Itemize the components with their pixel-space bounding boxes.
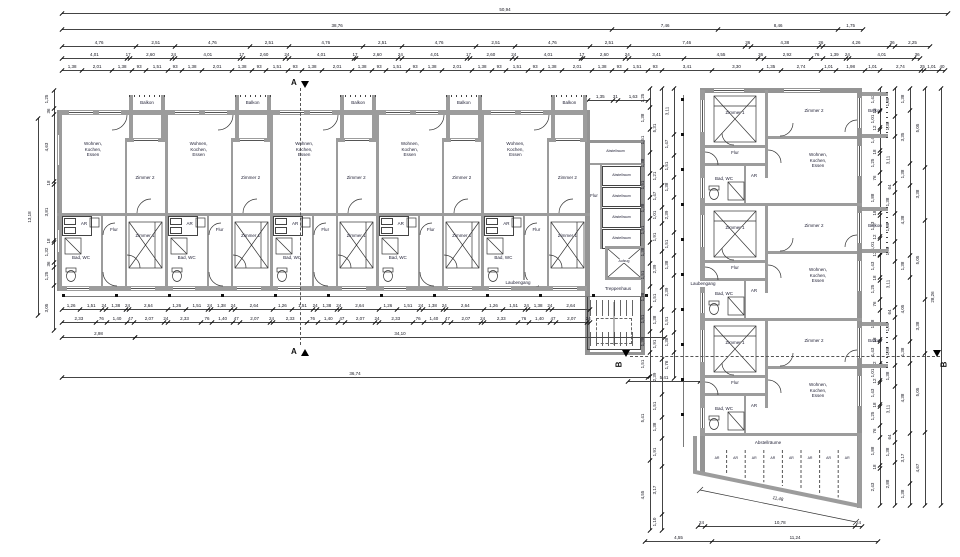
- unit-fixtures: [481, 95, 587, 291]
- walkway-post: [681, 203, 684, 206]
- room-label-balkon: Balkon: [340, 100, 376, 106]
- dimension-value: 1,38: [308, 64, 317, 69]
- dimension-value: 11,48: [772, 495, 784, 502]
- dimension-value: 1,01: [927, 64, 936, 69]
- dimension-value: 2,33: [391, 316, 400, 321]
- room-label-abstellraum: Abstellraum: [602, 194, 641, 198]
- room-label-zimmer2: Zimmer 2: [233, 175, 269, 181]
- door-arc: [348, 199, 362, 213]
- dimension-value: 2,64: [355, 303, 364, 308]
- dimension-value: 1,38: [188, 64, 197, 69]
- dimension-value: 1,10: [652, 517, 657, 526]
- sink: [301, 218, 310, 227]
- room-label-zimmer2: Zimmer 2: [444, 175, 480, 181]
- dimension-value: 2,51: [491, 40, 500, 45]
- dimension-value: 2,01: [453, 64, 462, 69]
- dimension-value: 93: [377, 64, 382, 69]
- dimension-value: 1,51: [652, 294, 657, 303]
- dimension-value: 3,41: [683, 64, 692, 69]
- room-label-wohnen: Wohnen, Kochen, Essen: [63, 141, 123, 158]
- dimension-value: 1,01: [868, 64, 877, 69]
- room-label-flur: Flur: [708, 380, 762, 386]
- dimension-value: 93: [533, 64, 538, 69]
- room-label-flur: Flur: [708, 265, 762, 271]
- dimension-value: 4,01: [544, 52, 553, 57]
- room-label-zimmer2: Zimmer 2: [778, 338, 850, 344]
- room-label-ar: AR: [745, 288, 763, 294]
- dimension-value: 28,26: [930, 291, 935, 302]
- section-label-a: A: [291, 347, 297, 356]
- dimension-value: 1,63: [629, 94, 638, 99]
- thin: [709, 301, 719, 305]
- dimension-value: 1,38: [598, 64, 607, 69]
- dimension-tick: [878, 503, 883, 508]
- dimension-value: 3,17: [652, 485, 657, 494]
- door-arc: [323, 115, 338, 130]
- dimension-value: 76: [204, 316, 209, 321]
- door-arc: [722, 363, 734, 375]
- thin: [65, 238, 81, 254]
- room-label-ar: AR: [745, 403, 763, 409]
- door-arc: [243, 199, 257, 213]
- dimension-value: 2,60: [486, 52, 495, 57]
- door-arc: [780, 123, 793, 136]
- dimension-tick: [52, 328, 57, 333]
- wall: [605, 246, 608, 280]
- thin: [276, 238, 292, 254]
- dimension-tick: [36, 313, 41, 318]
- dimension-value: 3,41: [652, 52, 661, 57]
- door-arc: [534, 115, 549, 130]
- apartment-unit-left: Balkon Wohnen, Kochen, Essen Zimmer 2 AR…: [165, 95, 271, 291]
- door-arc: [420, 272, 434, 286]
- dimension-value: 7,46: [682, 40, 691, 45]
- section-arrow: [301, 81, 309, 88]
- room-label-flur: Flur: [586, 193, 602, 199]
- dimension-value: 36,74: [349, 371, 360, 376]
- dimension-value: 34,10: [394, 331, 405, 336]
- walkway-post: [486, 294, 489, 297]
- room-label-bad: Bad, WC: [167, 255, 207, 261]
- door-arc: [112, 115, 127, 130]
- walkway-post: [115, 294, 118, 297]
- dimension-value: 1,38: [664, 260, 669, 269]
- room-label-zimmer1: Zimmer 1: [336, 233, 376, 239]
- thin: [66, 268, 76, 272]
- dimension-value: 24: [856, 520, 861, 525]
- dimension-value: 5,41: [660, 375, 669, 380]
- apartment-unit-right: Zimmer 1 Zimmer 2 Balkon Flur Wohnen, Ko…: [700, 205, 890, 320]
- walkway-post: [380, 294, 383, 297]
- dimension-value: 1,26: [67, 303, 76, 308]
- dimension-value: 1,51: [509, 303, 518, 308]
- unit-fixtures: [376, 95, 482, 291]
- walkway-post: [681, 168, 684, 171]
- room-label-flur: Flur: [312, 227, 338, 233]
- apartment-unit-left: Balkon Wohnen, Kochen, Essen Zimmer 2 AR…: [481, 95, 587, 291]
- dimension-value: 2,01: [333, 64, 342, 69]
- dimension-value: 93: [497, 64, 502, 69]
- dimension-value: 1,51: [640, 181, 645, 190]
- walkway-post: [681, 273, 684, 276]
- dimension-value: 2,01: [213, 64, 222, 69]
- walkway-post: [274, 294, 277, 297]
- dimension-value: 1,47: [652, 192, 657, 201]
- dimension-value: 2,39: [652, 265, 657, 274]
- room-label-balkon: Balkon: [446, 100, 482, 106]
- dimension-value: 1,35: [766, 64, 775, 69]
- dimension-value: 1,26: [278, 303, 287, 308]
- apartment-unit-right: Zimmer 1 Zimmer 2 Balkon Flur Wohnen, Ko…: [700, 90, 890, 205]
- dimension-value: 1,38: [885, 448, 890, 457]
- door-arc: [780, 353, 793, 366]
- dimension-value: 5,31: [652, 123, 657, 132]
- thin: [277, 268, 287, 272]
- room-label-treppenhaus: Treppenhaus: [596, 286, 640, 292]
- room-label-zimmer1: Zimmer 1: [442, 233, 482, 239]
- dimension-value: 3,81: [44, 208, 49, 217]
- room-label-bad: Bad, WC: [704, 291, 744, 297]
- dimension-value: 2,98: [94, 331, 103, 336]
- room-label-bad: Bad, WC: [61, 255, 101, 261]
- dimension-value: 50,94: [499, 7, 510, 12]
- dimension-value: 36: [745, 40, 750, 45]
- door-arc: [314, 272, 328, 286]
- room-label-zimmer1: Zimmer 1: [708, 110, 762, 116]
- dimension-value: 47: [551, 316, 556, 321]
- dimension-value: 76: [814, 52, 819, 57]
- room-label-wohnen: Wohnen, Kochen, Essen: [169, 141, 229, 158]
- dimension-value: 18: [46, 180, 51, 185]
- sink: [196, 218, 205, 227]
- section-arrow: [933, 350, 941, 357]
- dimension-value: 1,75: [846, 23, 855, 28]
- room-label-flur: Flur: [418, 227, 444, 233]
- dimension-value: 93: [257, 64, 262, 69]
- dimension-value: 2,33: [286, 316, 295, 321]
- walkway-post: [62, 294, 65, 297]
- dimension-value: 76: [310, 316, 315, 321]
- room-label-zimmer2: Zimmer 2: [778, 108, 850, 114]
- dimension-value: 4,38: [900, 393, 905, 402]
- dimension-tick: [939, 503, 944, 508]
- walkway-post: [221, 294, 224, 297]
- dimension-line: [62, 337, 135, 338]
- dimension-value: 4,67: [915, 464, 920, 473]
- dimension-value: 2,51: [265, 40, 274, 45]
- dimension-value: 4,55: [640, 490, 645, 499]
- door-arc: [103, 272, 117, 286]
- dimension-line: [54, 90, 55, 330]
- room-label-ar: AR: [394, 221, 408, 227]
- dimension-value: 1,51: [633, 64, 642, 69]
- room-label-flur: Flur: [101, 227, 127, 233]
- dimension-value: 2,88: [885, 479, 890, 488]
- stair-treads: [590, 300, 637, 316]
- room-label-wohnen: Wohnen, Kochen, Essen: [784, 267, 852, 284]
- walkway-post: [681, 413, 684, 416]
- room-label-balkon: Balkon: [235, 100, 271, 106]
- storage-ar-label: AR: [764, 456, 782, 460]
- dimension-value: 1,38: [217, 303, 226, 308]
- dimension-value: 36: [46, 262, 51, 267]
- dimension-value: 24: [699, 520, 704, 525]
- unit-fixtures: [270, 95, 376, 291]
- dimension-value: 2,60: [600, 52, 609, 57]
- dimension-value: 4,01: [877, 52, 886, 57]
- dimension-value: 8,46: [774, 23, 783, 28]
- dimension-value: 4,01: [430, 52, 439, 57]
- dimension-value: 1,51: [640, 225, 645, 234]
- dimension-value: 1,38: [238, 64, 247, 69]
- section-arrow: [622, 350, 630, 357]
- section-line-b: [630, 356, 940, 357]
- thin: [728, 412, 744, 430]
- dimension-value: 76: [99, 316, 104, 321]
- thin: [487, 238, 503, 254]
- unit-fixtures: [165, 95, 271, 291]
- dimension-value: 1,38: [111, 303, 120, 308]
- room-label-wohnen: Wohnen, Kochen, Essen: [274, 141, 334, 158]
- dimension-value: 1,38: [640, 114, 645, 123]
- room-label-zimmer1: Zimmer 1: [125, 233, 165, 239]
- room-label-abstellraum: Abstellraum: [602, 236, 641, 240]
- storage-ar-label: AR: [801, 456, 819, 460]
- room-label-bad: Bad, WC: [704, 176, 744, 182]
- thin: [171, 238, 187, 254]
- room-label-balkon: Balkon: [861, 223, 889, 229]
- dimension-value: 1,26: [172, 303, 181, 308]
- dimension-value: 2,60: [146, 52, 155, 57]
- apartment-unit-left: Balkon Wohnen, Kochen, Essen Zimmer 2 AR…: [376, 95, 482, 291]
- walkway-post: [592, 294, 595, 297]
- dimension-value: 1,21: [652, 172, 657, 181]
- dimension-value: 1,38: [900, 490, 905, 499]
- walkway-post: [327, 294, 330, 297]
- dimension-value: 1,51: [404, 303, 413, 308]
- dimension-value: 1,51: [153, 64, 162, 69]
- floor-plan: Abstellraum Abstellraum Abstellraum Abst…: [0, 0, 960, 557]
- dimension-value: 18: [872, 464, 877, 469]
- thin: [172, 268, 182, 272]
- dimension-value: 4,01: [317, 52, 326, 57]
- dimension-value: 1,26: [489, 303, 498, 308]
- dimension-value: 1,38: [640, 203, 645, 212]
- walkway-edge: [62, 296, 646, 297]
- dimension-value: 2,92: [783, 52, 792, 57]
- dimension-value: 1,38: [900, 170, 905, 179]
- room-label-zimmer2: Zimmer 2: [127, 175, 163, 181]
- dimension-line: [62, 377, 648, 378]
- dimension-value: 93: [413, 64, 418, 69]
- dimension-value: 18: [46, 239, 51, 244]
- dimension-value: 1,38: [323, 303, 332, 308]
- wall: [585, 352, 645, 355]
- door-arc: [768, 150, 781, 163]
- dimension-value: 1,47: [664, 140, 669, 149]
- section-label-b: B: [939, 362, 948, 368]
- dimension-value: 1,51: [273, 64, 282, 69]
- dimension-value: 47: [339, 316, 344, 321]
- dimension-value: 1,25: [640, 93, 645, 102]
- dimension-value: 1,51: [640, 270, 645, 279]
- dimension-value: 36: [758, 52, 763, 57]
- dimension-value: 1,39: [830, 52, 839, 57]
- dimension-value: 4,05: [900, 305, 905, 314]
- dimension-value: 1,40: [113, 316, 122, 321]
- room-label-zimmer2: Zimmer 2: [778, 223, 850, 229]
- dimension-value: 4,76: [548, 40, 557, 45]
- dimension-value: 1,51: [640, 315, 645, 324]
- dimension-value: 1,01: [652, 211, 657, 220]
- dimension-value: 2,33: [75, 316, 84, 321]
- dimension-line: [628, 381, 700, 382]
- section-label-b: B: [614, 362, 623, 368]
- dimension-tick: [928, 44, 933, 49]
- walkway-post: [168, 294, 171, 297]
- room-label-ar: AR: [745, 173, 763, 179]
- room-label-zimmer2: Zimmer 2: [338, 175, 374, 181]
- dimension-value: 1,38: [548, 64, 557, 69]
- section-label-a: A: [291, 78, 297, 87]
- dimension-value: 5,05: [915, 388, 920, 397]
- dimension-value: 2,51: [605, 40, 614, 45]
- dimension-value: 1,91: [652, 447, 657, 456]
- dimension-value: 4,38: [900, 216, 905, 225]
- dimension-value: 2,07: [250, 316, 259, 321]
- dimension-line: [62, 29, 863, 30]
- room-label-wohnen: Wohnen, Kochen, Essen: [485, 141, 545, 158]
- room-label-wohnen: Wohnen, Kochen, Essen: [784, 382, 852, 399]
- dimension-value: 38,76: [331, 23, 342, 28]
- dimension-value: 36: [46, 108, 51, 113]
- room-label-bad: Bad, WC: [483, 255, 523, 261]
- dimension-value: 7,46: [661, 23, 670, 28]
- dimension-value: 4,76: [435, 40, 444, 45]
- dimension-value: 1,38: [664, 338, 669, 347]
- dimension-value: 11,24: [790, 535, 801, 540]
- dimension-value: 1,91: [652, 340, 657, 349]
- dimension-value: 1,38: [640, 248, 645, 257]
- dimension-value: 4,55: [717, 52, 726, 57]
- dimension-value: 93: [653, 64, 658, 69]
- dimension-value: 1,38: [652, 423, 657, 432]
- dimension-value: 2,64: [566, 303, 575, 308]
- dimension-value: 1,40: [218, 316, 227, 321]
- dimension-value: 4,63: [44, 143, 49, 152]
- dimension-value: 5,05: [915, 255, 920, 264]
- dimension-line: [941, 88, 942, 505]
- thin: [382, 238, 398, 254]
- dimension-tick: [876, 539, 881, 544]
- dimension-value: 40: [940, 64, 945, 69]
- dimension-value: 1,25: [44, 272, 49, 281]
- room-label-laubengang: Laubengang: [686, 281, 720, 287]
- door-arc: [768, 265, 781, 278]
- wall: [605, 277, 643, 280]
- walkway-post: [681, 133, 684, 136]
- dimension-value: 1,38: [640, 158, 645, 167]
- dimension-value: 4,76: [321, 40, 330, 45]
- room-label-laubengang: Laubengang: [498, 280, 538, 286]
- dimension-value: 1,35: [596, 94, 605, 99]
- storage-ar-label: AR: [727, 456, 745, 460]
- dimension-value: 93: [173, 64, 178, 69]
- storage-ar-label: AR: [745, 456, 763, 460]
- dimension-value: 2,01: [573, 64, 582, 69]
- storage-ar-label: AR: [782, 456, 800, 460]
- room-label-ar: AR: [183, 221, 197, 227]
- section-arrow: [301, 349, 309, 356]
- thin: [728, 297, 744, 315]
- room-label-balkon: Balkon: [551, 100, 587, 106]
- dimension-value: 10,78: [774, 520, 785, 525]
- dimension-value: 5,41: [640, 413, 645, 422]
- dimension-value: 1,01: [824, 64, 833, 69]
- apartment-unit-right: Zimmer 1 Zimmer 2 Balkon Flur Wohnen, Ko…: [700, 320, 890, 435]
- door-arc: [845, 120, 857, 132]
- door-arc: [209, 272, 223, 286]
- dimension-tick: [660, 528, 665, 533]
- dimension-value: 93: [137, 64, 142, 69]
- dimension-value: 31: [613, 94, 618, 99]
- dimension-value: 1,38: [68, 64, 77, 69]
- door-arc: [722, 248, 734, 260]
- wall: [605, 246, 643, 249]
- dimension-value: 2,07: [145, 316, 154, 321]
- dimension-tick: [893, 503, 898, 508]
- dimension-value: 1,98: [846, 64, 855, 69]
- dimension-value: 3,30: [732, 64, 741, 69]
- dimension-value: 2,39: [664, 288, 669, 297]
- dimension-value: 76: [416, 316, 421, 321]
- dimension-value: 1,38: [640, 337, 645, 346]
- dimension-value: 1,91: [652, 232, 657, 241]
- room-label-zimmer1: Zimmer 1: [547, 233, 587, 239]
- room-label-wohnen: Wohnen, Kochen, Essen: [784, 152, 852, 169]
- storage-ar-label: AR: [838, 456, 856, 460]
- dimension-value: 2,39: [652, 372, 657, 381]
- dimension-value: 4,26: [852, 40, 861, 45]
- room-label-zimmer1: Zimmer 1: [708, 340, 762, 346]
- room-label-abstellraeume: Abstellräume: [730, 440, 806, 446]
- dimension-value: 1,38: [428, 64, 437, 69]
- dimension-value: 24: [418, 303, 423, 308]
- dimension-value: 1,51: [640, 360, 645, 369]
- dimension-value: 47: [234, 316, 239, 321]
- dimension-line: [62, 46, 930, 47]
- dimension-value: 1,51: [652, 401, 657, 410]
- door-arc: [780, 238, 793, 251]
- dimension-value: 2,60: [373, 52, 382, 57]
- dimension-value: 4,01: [90, 52, 99, 57]
- room-label-bad: Bad, WC: [378, 255, 418, 261]
- thin: [709, 416, 719, 420]
- room-label-ar: AR: [499, 221, 513, 227]
- dimension-value: 1,51: [192, 303, 201, 308]
- section-line-a: [300, 88, 301, 345]
- dimension-value: 1,32: [44, 248, 49, 257]
- dimension-value: 2,07: [567, 316, 576, 321]
- dimension-value: 2,39: [664, 211, 669, 220]
- dimension-value: 36: [890, 40, 895, 45]
- dimension-value: 2,33: [180, 316, 189, 321]
- door-arc: [429, 115, 444, 130]
- sink: [90, 218, 99, 227]
- dimension-value: 5,05: [915, 123, 920, 132]
- dimension-value: 2,74: [896, 64, 905, 69]
- dimension-value: 3,17: [900, 453, 905, 462]
